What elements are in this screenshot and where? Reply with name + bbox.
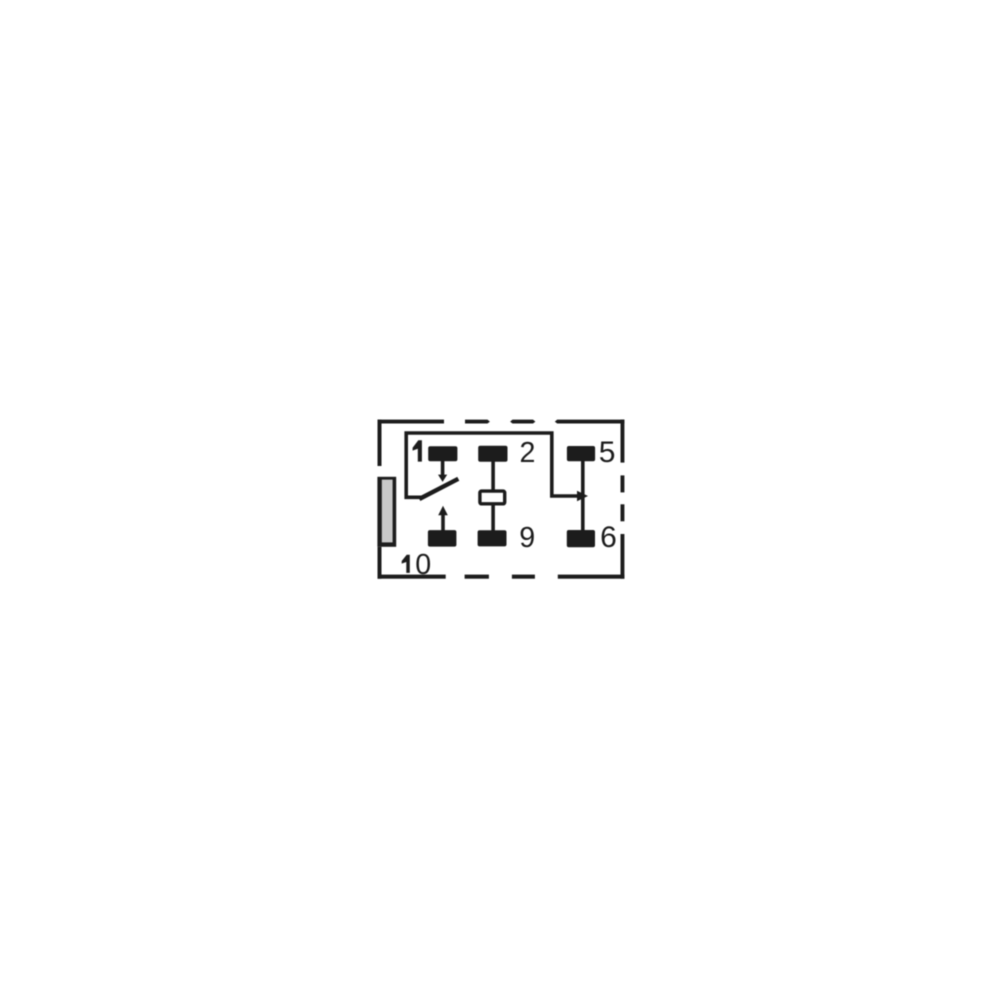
svg-text:6: 6 [600,521,617,554]
svg-text:0: 0 [415,549,431,581]
svg-text:5: 5 [599,436,616,469]
svg-text:2: 2 [520,437,536,469]
svg-text:9: 9 [519,522,535,554]
